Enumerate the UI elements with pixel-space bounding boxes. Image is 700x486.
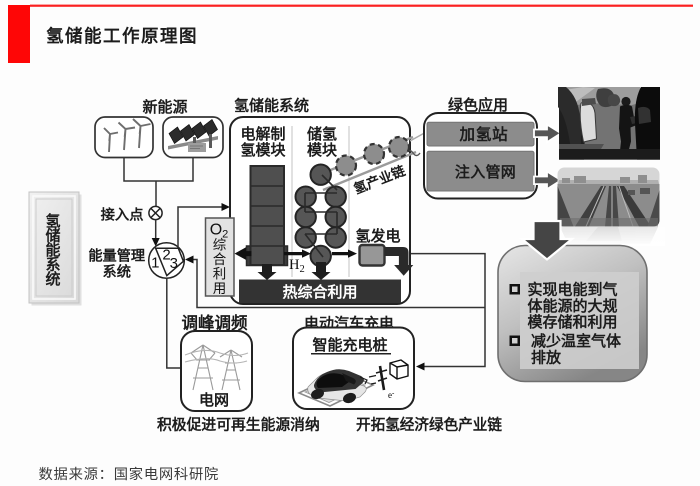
svg-text:排放: 排放 — [531, 348, 562, 366]
svg-text:加氢站: 加氢站 — [459, 125, 509, 144]
svg-text:统: 统 — [45, 270, 60, 288]
svg-text:调峰调频: 调峰调频 — [182, 313, 249, 333]
svg-text:利: 利 — [213, 267, 227, 282]
svg-text:实现电能到气: 实现电能到气 — [528, 281, 618, 299]
svg-text:3: 3 — [170, 255, 178, 272]
svg-text:用: 用 — [213, 281, 227, 296]
svg-text:数据来源：国家电网科研院: 数据来源：国家电网科研院 — [39, 466, 220, 483]
svg-text:接入点: 接入点 — [101, 206, 144, 224]
svg-text:电解制: 电解制 — [240, 125, 285, 143]
svg-text:氢发电: 氢发电 — [355, 227, 400, 245]
svg-text:1: 1 — [151, 255, 159, 272]
svg-text:减少温室气体: 减少温室气体 — [531, 332, 622, 350]
svg-text:智能充电桩: 智能充电桩 — [313, 336, 388, 354]
svg-text:系统: 系统 — [103, 263, 131, 280]
svg-text:热综合利用: 热综合利用 — [282, 283, 357, 301]
svg-text:新能源: 新能源 — [142, 98, 187, 116]
svg-text:氢储能工作原理图: 氢储能工作原理图 — [46, 26, 198, 46]
svg-text:开拓氢经济绿色产业链: 开拓氢经济绿色产业链 — [356, 416, 502, 434]
svg-text:积极促进可再生能源消纳: 积极促进可再生能源消纳 — [157, 416, 320, 434]
svg-text:合: 合 — [213, 252, 227, 267]
svg-text:绿色应用: 绿色应用 — [448, 96, 508, 114]
svg-text:综: 综 — [213, 238, 227, 253]
svg-text:体能源的大规: 体能源的大规 — [528, 297, 618, 315]
svg-text:注入管网: 注入管网 — [455, 163, 516, 181]
svg-text:能量管理: 能量管理 — [88, 247, 146, 264]
svg-text:模块: 模块 — [307, 141, 338, 159]
svg-text:储氢: 储氢 — [307, 125, 337, 143]
svg-text:氢模块: 氢模块 — [240, 141, 286, 159]
svg-text:电网: 电网 — [199, 391, 229, 409]
svg-text:氢储能系统: 氢储能系统 — [234, 97, 309, 115]
svg-text:模存储和利用: 模存储和利用 — [528, 313, 618, 331]
